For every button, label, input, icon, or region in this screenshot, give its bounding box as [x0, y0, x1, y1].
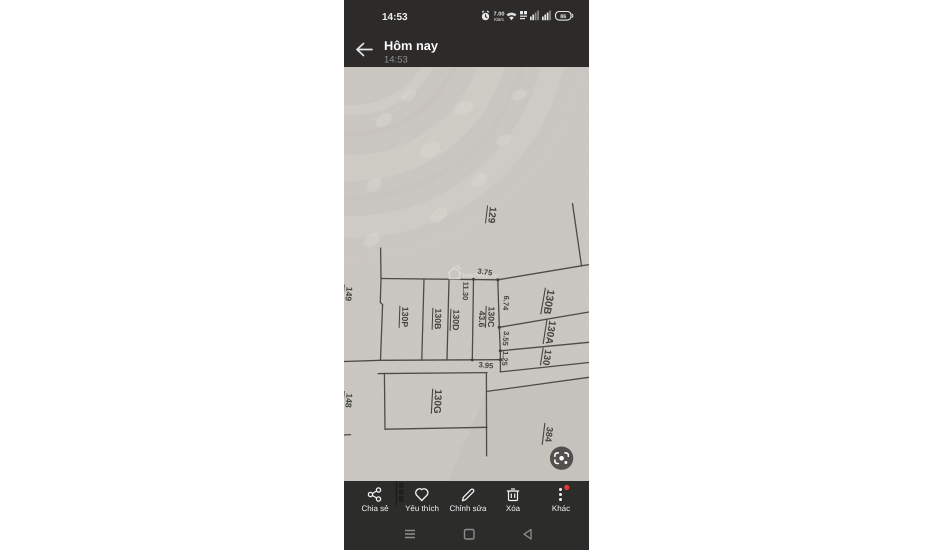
svg-text:Hôm nay: Hôm nay	[384, 38, 439, 53]
svg-text:6.74: 6.74	[501, 295, 511, 311]
svg-text:384: 384	[543, 426, 555, 442]
svg-text:3.55: 3.55	[501, 331, 511, 347]
svg-text:Chia sẻ: Chia sẻ	[361, 504, 389, 513]
svg-text:Yêu thích: Yêu thích	[405, 504, 439, 513]
svg-text:Chỉnh sửa: Chỉnh sửa	[450, 504, 487, 513]
svg-text:Xóa: Xóa	[506, 504, 521, 513]
svg-text:149: 149	[344, 286, 355, 301]
svg-text:14:53: 14:53	[382, 12, 408, 23]
svg-text:Khác: Khác	[552, 504, 570, 513]
svg-text:11.30: 11.30	[461, 282, 471, 301]
svg-text:14:53: 14:53	[384, 55, 408, 66]
svg-text:130C: 130C	[486, 306, 497, 328]
svg-text:130P: 130P	[400, 307, 411, 328]
svg-text:148: 148	[344, 393, 355, 408]
svg-text:1.25: 1.25	[500, 351, 510, 367]
svg-text:KB/s: KB/s	[494, 17, 504, 22]
svg-text:86: 86	[560, 14, 566, 20]
svg-text:130B: 130B	[433, 308, 444, 329]
svg-text:3.95: 3.95	[478, 360, 494, 370]
svg-text:130D: 130D	[451, 309, 462, 330]
